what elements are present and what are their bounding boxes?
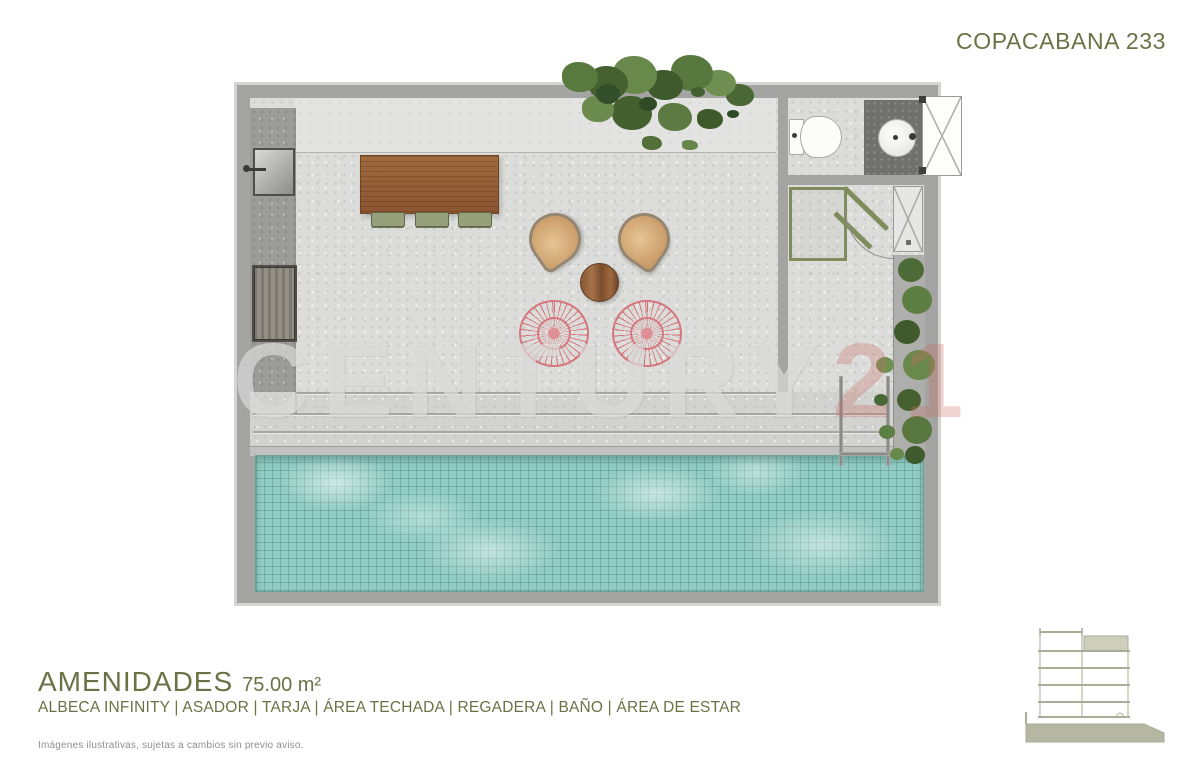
footer-title-line: AMENIDADES75.00 m² — [38, 666, 321, 698]
bar-stool-3 — [458, 212, 492, 227]
covered-area-band — [295, 98, 776, 153]
building-section-icon — [1016, 616, 1171, 746]
plants-right-icon — [898, 258, 924, 282]
amenities-title: AMENIDADES — [38, 666, 233, 697]
door-hinge-top — [919, 96, 926, 103]
shower-glass-enclosure — [789, 187, 847, 261]
planter-box — [893, 255, 925, 461]
disclaimer-text: Imágenes ilustrativas, sujetas a cambios… — [38, 740, 304, 751]
door-hinge-bottom — [919, 167, 926, 174]
plants-top-icon — [562, 62, 598, 92]
pool-ladder-crossbar — [839, 452, 890, 456]
toilet-flush-button — [792, 133, 797, 138]
sink-tarja — [253, 148, 295, 196]
acapulco-chair-1 — [519, 300, 589, 367]
acapulco-chair-2 — [612, 300, 682, 367]
step-edge-3 — [253, 431, 922, 433]
bathroom-wall — [788, 175, 924, 185]
bar-table — [360, 155, 499, 214]
amenities-list: ALBECA INFINITY | ASADOR | TARJA | ÁREA … — [38, 699, 741, 717]
step-edge-2 — [253, 413, 890, 415]
toilet-bowl — [800, 116, 842, 158]
shower-tray — [893, 186, 923, 252]
step-edge-1v — [295, 392, 297, 413]
plants-top-shadow-icon — [596, 84, 620, 104]
tarja-faucet-handle — [243, 165, 250, 172]
bathroom-sink-drain — [893, 135, 898, 140]
coffee-table — [580, 263, 619, 302]
bathroom-faucet — [909, 133, 916, 140]
divider-wall — [778, 98, 788, 392]
infinity-pool — [255, 455, 924, 592]
bar-stool-2 — [415, 212, 449, 227]
entry-door — [922, 96, 962, 176]
step-edge-1 — [295, 392, 776, 394]
bar-stool-1 — [371, 212, 405, 227]
amenities-area: 75.00 m² — [242, 674, 321, 696]
grill-asador — [252, 265, 297, 342]
